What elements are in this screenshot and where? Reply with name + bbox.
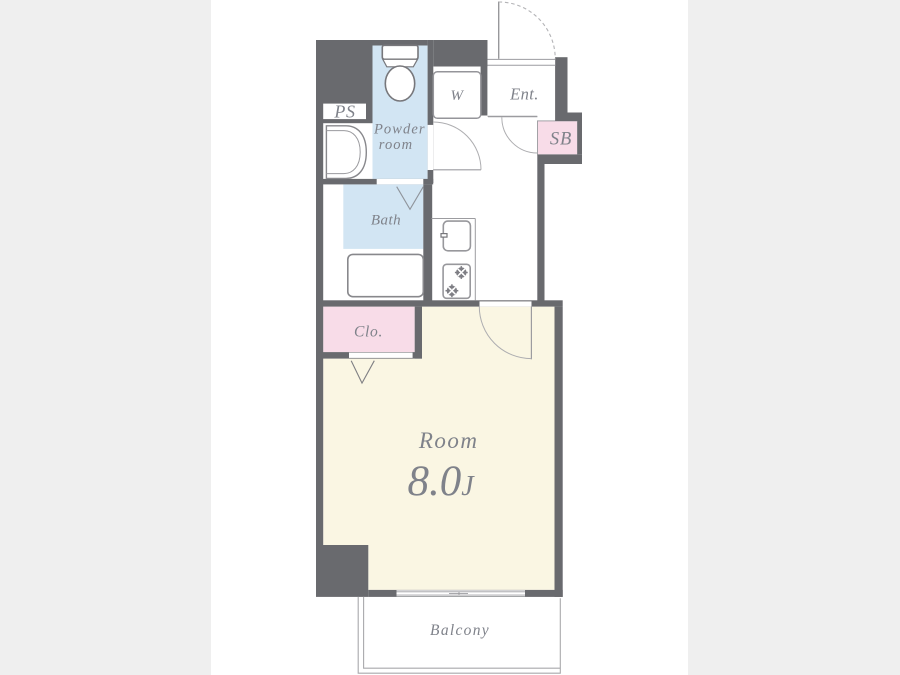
svg-text:Powder: Powder [373,121,426,137]
svg-text:Ent.: Ent. [509,84,539,103]
svg-text:PS: PS [333,102,355,122]
svg-text:SB: SB [550,130,572,150]
svg-text:Room: Room [418,428,479,453]
svg-text:room: room [379,137,413,153]
svg-text:Balcony: Balcony [430,622,490,639]
svg-text:Bath: Bath [371,212,401,228]
svg-text:W: W [451,88,465,104]
svg-text:Clo.: Clo. [354,324,383,341]
